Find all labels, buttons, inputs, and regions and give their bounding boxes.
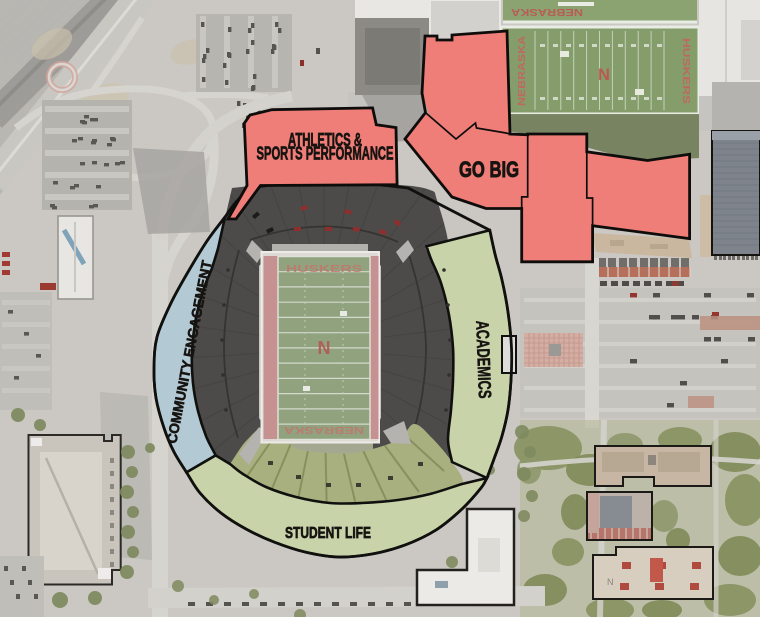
svg-text:SPORTS PERFORMANCE: SPORTS PERFORMANCE (257, 144, 394, 164)
svg-text:N: N (607, 577, 614, 587)
svg-text:NEBRASKA: NEBRASKA (516, 36, 528, 106)
svg-text:STUDENT LIFE: STUDENT LIFE (285, 525, 371, 542)
svg-text:HUSKERS: HUSKERS (286, 264, 362, 275)
svg-text:GO BIG: GO BIG (459, 157, 519, 182)
svg-text:NEBRASKA: NEBRASKA (511, 6, 583, 18)
svg-text:HUSKERS: HUSKERS (680, 38, 692, 104)
svg-text:ACADEMICS: ACADEMICS (472, 320, 495, 399)
svg-text:NEBRASKA: NEBRASKA (284, 424, 364, 435)
svg-text:N: N (598, 66, 610, 84)
svg-text:N: N (318, 338, 331, 358)
